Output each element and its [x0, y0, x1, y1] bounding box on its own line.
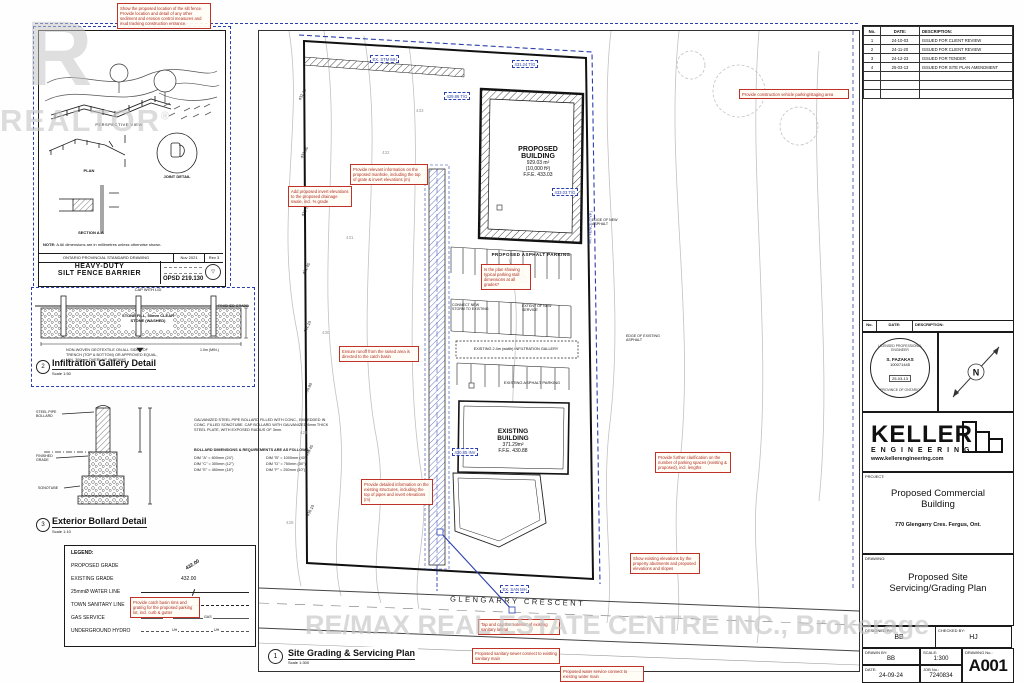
stamp-ring-top: LICENSED PROFESSIONAL ENGINEER	[871, 344, 929, 352]
company-logo-box: KELLER E N G I N E E R I N G www.kellere…	[862, 412, 1014, 472]
plan-title-block: 1 Site Grading & Servicing Plan Scale 1:…	[265, 647, 418, 666]
checked-by-label: CHECKED BY:	[936, 627, 1011, 634]
red-note: Tap and cap the 'exterior' of existing s…	[478, 619, 560, 635]
detail-2-bubble: 2	[36, 360, 50, 374]
rev-no: 1	[864, 36, 881, 45]
revision-table-box: No. DATE: DESCRIPTION: 1 24-10-03 ISSUED…	[862, 25, 1014, 322]
scale-cell: SCALE: 1:300	[920, 648, 962, 665]
blue-callout: 433.03 T/G	[552, 188, 578, 196]
silt-fence-sketch	[39, 31, 223, 181]
legend-existing-grade-label: EXISTING GRADE	[71, 576, 135, 582]
job-no-value: 7240834	[921, 673, 961, 679]
contour-label: 432	[382, 150, 390, 155]
blue-callout: EX. STM MH	[370, 55, 399, 63]
bollard-scale: Scale 1:10	[52, 529, 71, 534]
company-url: www.kellerengineering.com	[871, 456, 973, 462]
drawing-line2: Servicing/Grading Plan	[863, 583, 1013, 594]
designed-by-label: DESIGNED BY:	[863, 627, 935, 634]
red-note: Add proposed invert elevations to the pr…	[288, 186, 352, 207]
revision-row: 2 24-11-20 ISSUED FOR CLIENT REVIEW	[864, 45, 1013, 54]
opsd-emblem-icon: ▽	[205, 264, 221, 280]
engineer-stamp: LICENSED PROFESSIONAL ENGINEER S. FAZAKA…	[870, 338, 930, 398]
dim-a: DIM "A" = 600mm (24")	[194, 456, 266, 461]
revision-header-row: No. DATE: DESCRIPTION:	[864, 27, 1013, 36]
edge-existing-asphalt-label: EDGE OF EXISTING ASPHALT	[626, 334, 660, 342]
revision-row: 4 25-03-13 ISSUED FOR SITE PLAN AMENDMEN…	[864, 63, 1013, 72]
legend-box: LEGEND: PROPOSED GRADE 432.00 EXISTING G…	[64, 545, 256, 647]
bollard-pipe-label: STEEL PIPE BOLLARD	[36, 410, 62, 418]
red-note: Is the plan showing typical parking stal…	[481, 264, 531, 290]
project-line2: Building	[863, 499, 1013, 510]
gallery-strip-label: EXISTING 2.4m (width) INFILTRATION GALLE…	[458, 347, 574, 351]
drawn-by-label: DRAWN BY:	[863, 649, 919, 656]
legend-row-proposed-grade: PROPOSED GRADE 432.00	[71, 559, 249, 572]
drawing-name: Proposed Site Servicing/Grading Plan	[863, 572, 1013, 594]
title-block: No. DATE: DESCRIPTION: 1 24-10-03 ISSUED…	[862, 25, 1014, 681]
existing-parking-label: EXISTING ASPHALT PARKING	[494, 380, 570, 385]
proposed-building-l1: PROPOSED	[498, 146, 578, 153]
rev-date: 24-11-20	[881, 45, 920, 54]
hydro-mark-1: UH	[171, 628, 178, 632]
detail-3-bubble: 3	[36, 518, 50, 532]
dim-c: DIM "C" = 300mm (12")	[194, 462, 266, 467]
cap-label: CAP WITH LID	[118, 288, 178, 293]
bollard-note-1: GALVANIZED STEEL PIPE BOLLARD FILLED WIT…	[194, 418, 332, 433]
infiltration-detail: CAP WITH LID STONE FILL, 50mm CLEAR STON…	[31, 287, 255, 387]
drawing-line1: Proposed Site	[863, 572, 1013, 583]
stone-label: STONE FILL, 50mm CLEAR STONE (WASHED)	[120, 314, 176, 324]
proposed-grade-sample: 432.00	[185, 558, 201, 571]
red-note: Provide detailed information on the exis…	[361, 479, 433, 505]
existing-building-l2: BUILDING	[478, 435, 548, 442]
contour-label: 433	[416, 108, 424, 113]
legend-water-label: 25mmØ WATER LINE	[71, 589, 135, 595]
svg-text:N: N	[973, 368, 980, 378]
rev-col-desc: DESCRIPTION:	[920, 27, 1013, 36]
perspective-view-label: PERSPECTIVE VIEW	[79, 123, 159, 128]
opsd-title: HEAVY-DUTY SILT FENCE BARRIER	[39, 261, 160, 284]
red-note: Provide construction vehicle parking/sta…	[739, 89, 849, 99]
legend-hydro-symbol: UHUH	[141, 626, 249, 636]
legend-proposed-grade-label: PROPOSED GRADE	[71, 563, 135, 569]
drawing-sheet: R REALTOR® RE/MAX REAL ESTATE CENTRE INC…	[0, 0, 1024, 683]
bollard-sonotube-label: SONOTUBE	[38, 486, 64, 490]
scale-label: SCALE:	[921, 649, 961, 656]
existing-building-label: EXISTING BUILDING 371.29m² F.F.E. 430.88	[478, 428, 548, 454]
joint-detail-label: JOINT DETAIL	[141, 175, 213, 180]
drawn-by-value: BB	[863, 656, 919, 662]
extent-service-label: EXTENT OF NEW SERVICE	[522, 304, 558, 312]
opsd-title-strip: HEAVY-DUTY SILT FENCE BARRIER OPSD 219.1…	[39, 261, 223, 284]
north-arrow-icon: N	[939, 333, 1013, 411]
company-sub: E N G I N E E R I N G	[871, 447, 973, 454]
drawn-by-cell: DRAWN BY: BB	[862, 648, 920, 665]
dim-b: DIM "B" = 1000mm (40")	[266, 456, 344, 461]
stamp-license: 100071445	[871, 362, 929, 367]
contour-label: 430	[322, 330, 330, 335]
plan-title-scale: Scale 1:300	[288, 660, 415, 665]
existing-building-l1: EXISTING	[478, 428, 548, 435]
designed-by-value: BB	[863, 634, 935, 641]
rev-desc: ISSUED FOR SITE PLAN AMENDMENT	[920, 63, 1013, 72]
bollard-dims: DIM "A" = 600mm (24") DIM "B" = 1000mm (…	[194, 456, 344, 473]
north-arrow-box: N	[938, 332, 1014, 412]
edge-new-asphalt-label: EDGE OF NEW ASPHALT	[592, 218, 622, 226]
rev2-col-desc: DESCRIPTION:	[913, 321, 1013, 331]
existing-building-ffe: F.F.E. 430.88	[478, 448, 548, 454]
date-value: 24-09-24	[863, 673, 919, 679]
revision-row: 3 24-12-23 ISSUED FOR TENDER	[864, 54, 1013, 63]
date-label: DATE:	[863, 666, 919, 673]
rev-desc: ISSUED FOR CLIENT REVIEW	[920, 45, 1013, 54]
depth-label: 1.0m (MIN.)	[200, 348, 230, 352]
stamp-ring-bottom: PROVINCE OF ONTARIO	[871, 388, 929, 392]
company-logo: KELLER E N G I N E E R I N G www.kellere…	[871, 423, 973, 462]
legend-water-symbol	[141, 587, 249, 597]
rev-col-no: No.	[864, 27, 881, 36]
drawing-box: DRAWING: Proposed Site Servicing/Grading…	[862, 554, 1014, 626]
rev-no: 4	[864, 63, 881, 72]
bollard-detail: STEEL PIPE BOLLARD FINISHED GRADE SONOTU…	[36, 402, 336, 537]
rev-date: 25-03-13	[881, 63, 920, 72]
legend-existing-grade-symbol: 432.00	[141, 574, 249, 584]
legend-hydro-label: UNDERGROUND HYDRO	[71, 628, 135, 634]
proposed-parking-label: PROPOSED ASPHALT PARKING	[488, 252, 574, 257]
dim-e: DIM "E" = 450mm (18")	[194, 468, 266, 473]
bottom-grid: DRAWN BY: BB SCALE: 1:300 DATE: 24-09-24…	[862, 648, 1012, 681]
legend-title: LEGEND:	[71, 550, 249, 556]
hydro-mark-2: UH	[213, 628, 220, 632]
note-title: NOTE:	[43, 242, 55, 247]
drawing-no-label: DRAWING No.:	[963, 649, 1013, 656]
checked-by-value: HJ	[936, 634, 1011, 641]
infiltration-scale: Scale 1:50	[52, 371, 71, 376]
blue-callout: 431.24 T/G	[512, 60, 538, 68]
drawing-no-cell: DRAWING No.: A001	[962, 648, 1014, 683]
opsd-dash-2	[164, 269, 202, 274]
plan-title-label: Site Grading & Servicing Plan	[288, 648, 415, 660]
date-cell: DATE: 24-09-24	[862, 665, 920, 683]
stamp-box: LICENSED PROFESSIONAL ENGINEER S. FAZAKA…	[862, 332, 938, 412]
rev2-col-date: DATE:	[877, 321, 913, 331]
red-note: Proposed water service connect to existi…	[560, 666, 644, 682]
opsd-note: NOTE: A All dimensions are in millimetre…	[43, 243, 219, 248]
dim-f: DIM "F" = 250mm (10")	[266, 468, 344, 473]
red-note: Proposed sanitary sewer connect to exist…	[472, 648, 560, 664]
red-note: Show existing elevations by the property…	[630, 553, 700, 574]
legend-proposed-grade-symbol: 432.00	[141, 561, 249, 571]
job-no-label: JOB No.:	[921, 666, 961, 673]
red-note: Provide further clarification on the num…	[655, 452, 731, 473]
bollard-title: Exterior Bollard Detail	[52, 516, 147, 528]
blue-callout: EX. SAN MH	[500, 585, 529, 593]
plan-label: PLAN	[69, 169, 109, 174]
company-name: KELLER	[871, 423, 973, 447]
red-note: Show the proposed location of the silt f…	[117, 3, 211, 29]
grade-label: FINISHED GRADE	[218, 304, 252, 308]
proposed-building-ffe: F.F.E. 433.03	[498, 172, 578, 178]
red-note: Provide relevant information on the prop…	[350, 164, 428, 185]
proposed-building-label: PROPOSED BUILDING 929.03 m² (10,000 ft²)…	[498, 146, 578, 178]
project-line1: Proposed Commercial	[863, 488, 1013, 499]
note-text: A All dimensions are in millimetres unle…	[56, 242, 161, 247]
company-logo-steps-icon	[961, 420, 1009, 464]
gas-mark-2: GAS	[203, 615, 213, 619]
rev-no: 2	[864, 45, 881, 54]
contour-label: 428	[286, 520, 294, 525]
revision-row: 1 24-10-03 ISSUED FOR CLIENT REVIEW	[864, 36, 1013, 45]
stamp-date: 25-03-13	[889, 375, 911, 382]
rev-no: 3	[864, 54, 881, 63]
blue-callout: 430.85 INV	[452, 448, 478, 456]
silt-fence-detail: PERSPECTIVE VIEW PLAN JOINT DETAIL SECTI…	[38, 30, 226, 287]
drawing-label: DRAWING:	[863, 555, 1013, 562]
service-corridor	[425, 165, 449, 569]
project-name: Proposed Commercial Building	[863, 488, 1013, 510]
legend-gas-label: GAS SERVICE	[71, 615, 135, 621]
drawing-no-value: A001	[963, 656, 1013, 676]
rev-desc: ISSUED FOR CLIENT REVIEW	[920, 36, 1013, 45]
scale-value: 1:300	[921, 656, 961, 662]
checked-by-cell: CHECKED BY: HJ	[935, 626, 1012, 648]
revision-row-empty	[864, 90, 1013, 99]
rev-desc: ISSUED FOR TENDER	[920, 54, 1013, 63]
rev-date: 24-12-23	[881, 54, 920, 63]
opsd-number-cell: OPSD 219.130 ▽	[160, 261, 223, 284]
legend-sanitary-label: TOWN SANITARY LINE	[71, 602, 135, 608]
contour-label: 431	[346, 235, 354, 240]
legend-row-existing-grade: EXISTING GRADE 432.00	[71, 572, 249, 585]
opsd-title-line1: HEAVY-DUTY	[39, 263, 160, 270]
red-note: Provide catch basin rims and grating for…	[130, 597, 200, 618]
job-no-cell: JOB No.: 7240834	[920, 665, 962, 683]
bollard-grade-label: FINISHED GRADE	[36, 454, 62, 462]
blue-callout: 429.86 T/G	[444, 92, 470, 100]
rev-date: 24-10-03	[881, 36, 920, 45]
project-address: 770 Glengarry Cres. Fergus, Ont.	[863, 522, 1013, 528]
infiltration-title: Infiltration Gallery Detail	[52, 358, 156, 370]
opsd-dash-1	[164, 263, 202, 268]
lower-pad-shape	[453, 473, 546, 547]
rev2-col-no: No.	[863, 321, 877, 331]
red-note: Ensure runoff from the raised area is di…	[339, 346, 419, 362]
opsd-number: OPSD 219.130	[163, 276, 203, 282]
legend-row-hydro: UNDERGROUND HYDRO UHUH	[71, 624, 249, 637]
revision-header-2: No. DATE: DESCRIPTION:	[862, 320, 1014, 332]
section-label: SECTION A-A	[61, 231, 121, 236]
opsd-title-line2: SILT FENCE BARRIER	[39, 270, 160, 277]
revision-row-empty	[864, 81, 1013, 90]
project-box: PROJECT: Proposed Commercial Building 77…	[862, 472, 1014, 554]
project-label: PROJECT:	[863, 473, 1013, 480]
designed-checked-row: DESIGNED BY: BB CHECKED BY: HJ	[862, 626, 1012, 648]
plan-1-bubble: 1	[268, 649, 283, 664]
proposed-building-l2: BUILDING	[498, 153, 578, 160]
revision-row-empty	[864, 72, 1013, 81]
rev-col-date: DATE:	[881, 27, 920, 36]
existing-grade-sample: 432.00	[181, 576, 196, 582]
designed-by-cell: DESIGNED BY: BB	[862, 626, 935, 648]
contour-label: 429	[300, 430, 308, 435]
dim-d: DIM "D" = 750mm (30")	[266, 462, 344, 467]
plan-title-text: Site Grading & Servicing Plan Scale 1:30…	[288, 648, 415, 665]
revision-table: No. DATE: DESCRIPTION: 1 24-10-03 ISSUED…	[863, 26, 1013, 99]
connect-storm-label: CONNECT NEW STORM TO EXISTING	[452, 303, 492, 311]
